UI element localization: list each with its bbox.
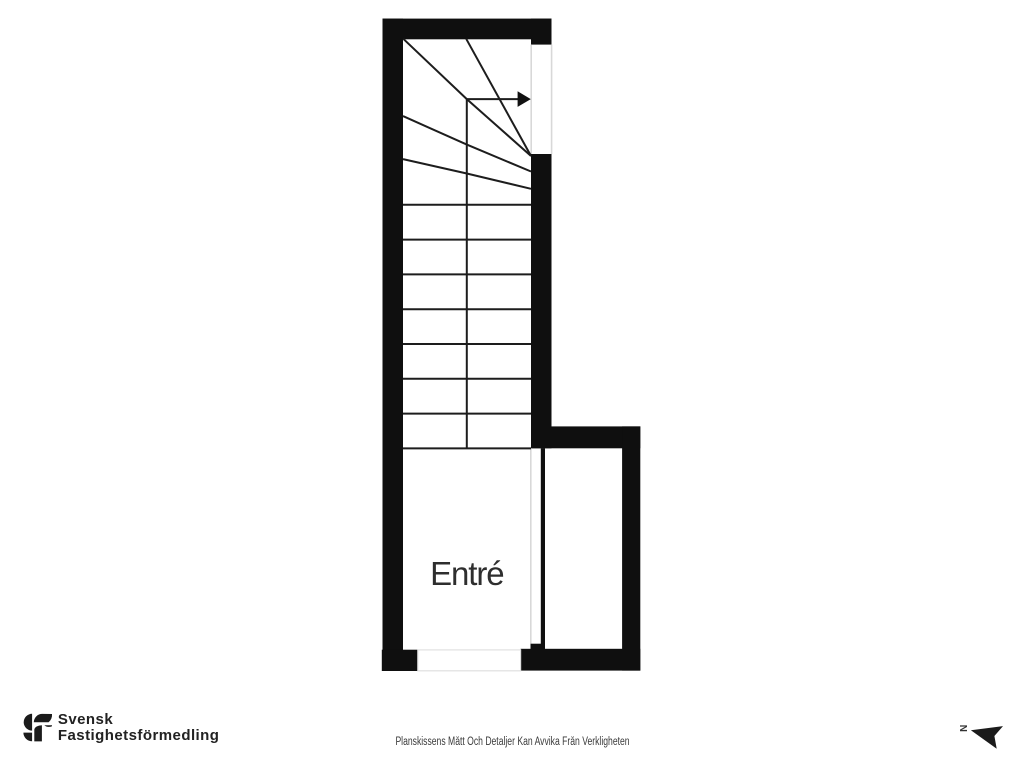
svg-text:Entré: Entré <box>430 555 503 592</box>
